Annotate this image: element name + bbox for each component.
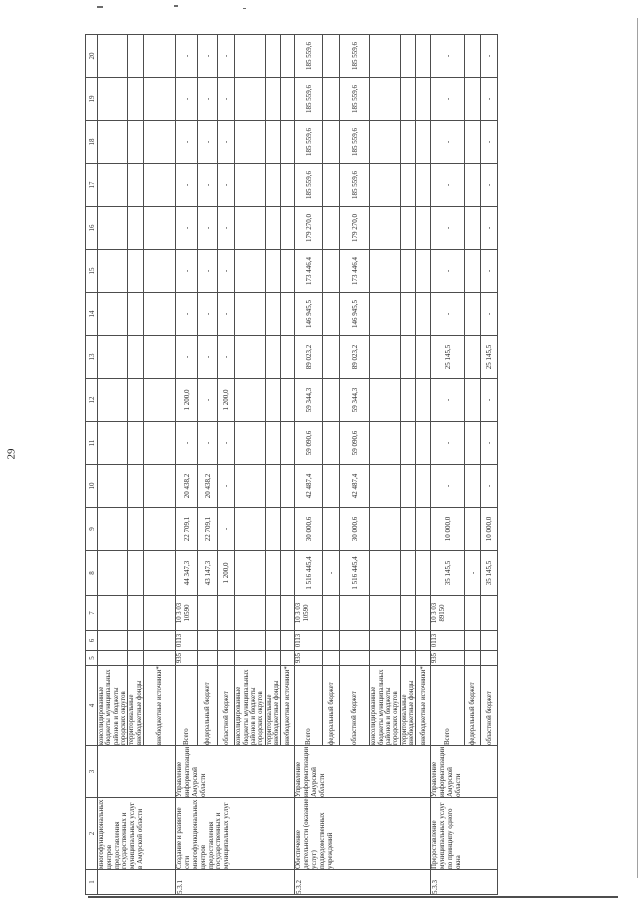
funding-source-label: федеральный бюджет — [323, 666, 340, 746]
amount-cell — [465, 121, 481, 164]
scan-speck — [243, 8, 246, 9]
amount-cell — [323, 35, 340, 78]
column-number-cell: 15 — [86, 250, 98, 293]
amount-cell: 1 516 445,4 — [295, 551, 323, 596]
amount-cell: 44 347,3 — [176, 551, 198, 596]
csr-code-cell — [128, 596, 144, 631]
csr-code-cell — [340, 596, 370, 631]
amount-cell — [144, 551, 176, 596]
amount-cell: 185 559,6 — [295, 35, 323, 78]
amount-cell: 185 559,6 — [340, 78, 370, 121]
grbs-code-cell — [416, 651, 431, 666]
amount-cell — [465, 78, 481, 121]
rzpr-code-cell — [235, 631, 265, 651]
amount-cell — [128, 551, 144, 596]
amount-cell: - — [198, 121, 218, 164]
rzpr-code-cell — [98, 631, 128, 651]
amount-cell: - — [198, 207, 218, 250]
amount-cell: - — [218, 293, 235, 336]
row-group-number: 5.3.2 — [295, 870, 431, 895]
amount-cell — [144, 207, 176, 250]
amount-cell: 146 945,5 — [295, 293, 323, 336]
amount-cell — [400, 250, 416, 293]
amount-cell — [128, 207, 144, 250]
amount-cell — [265, 379, 281, 422]
amount-cell: - — [198, 422, 218, 465]
column-number-cell: 18 — [86, 121, 98, 164]
amount-cell — [281, 551, 295, 596]
amount-cell — [370, 336, 400, 379]
amount-cell: 42 487,4 — [340, 465, 370, 508]
amount-cell — [281, 250, 295, 293]
amount-cell: 1 200,0 — [218, 551, 235, 596]
amount-cell — [98, 250, 128, 293]
amount-cell — [98, 78, 128, 121]
amount-cell — [400, 207, 416, 250]
amount-cell — [370, 250, 400, 293]
amount-cell — [265, 508, 281, 551]
amount-cell — [128, 78, 144, 121]
amount-cell: 185 559,6 — [340, 164, 370, 207]
grbs-code-cell — [128, 651, 144, 666]
column-number-cell: 19 — [86, 78, 98, 121]
column-number-cell: 5 — [86, 651, 98, 666]
amount-cell: 185 559,6 — [340, 35, 370, 78]
amount-cell: - — [198, 78, 218, 121]
amount-cell: 179 270,0 — [340, 207, 370, 250]
amount-cell — [416, 465, 431, 508]
amount-cell — [235, 336, 265, 379]
amount-cell: - — [198, 336, 218, 379]
amount-cell — [281, 78, 295, 121]
amount-cell — [323, 250, 340, 293]
amount-cell — [370, 207, 400, 250]
amount-cell — [416, 121, 431, 164]
amount-cell: - — [431, 78, 465, 121]
amount-cell: - — [218, 422, 235, 465]
grbs-code-cell — [265, 651, 281, 666]
amount-cell — [265, 78, 281, 121]
rzpr-code-cell — [198, 631, 218, 651]
row-group-number: 5.3.1 — [176, 870, 295, 895]
amount-cell — [465, 250, 481, 293]
amount-cell: - — [481, 78, 498, 121]
csr-code-cell: 10 3 03 10590 — [176, 596, 198, 631]
csr-code-cell — [265, 596, 281, 631]
rzpr-code-cell — [481, 631, 498, 651]
funding-source-label: внебюджетные источники* — [144, 666, 176, 746]
amount-cell — [323, 422, 340, 465]
amount-cell — [370, 35, 400, 78]
column-number-cell: 13 — [86, 336, 98, 379]
amount-cell — [416, 207, 431, 250]
amount-cell: - — [198, 164, 218, 207]
amount-cell: 10 000,0 — [431, 508, 465, 551]
column-number-cell: 1 — [86, 870, 98, 895]
amount-cell: 185 559,6 — [295, 121, 323, 164]
amount-cell — [281, 293, 295, 336]
amount-cell — [128, 121, 144, 164]
scan-artifact-right-edge — [637, 18, 638, 878]
grbs-code-cell — [235, 651, 265, 666]
rzpr-code-cell — [400, 631, 416, 651]
amount-cell — [465, 164, 481, 207]
financing-table: 1234567891011121314151617181920многофунк… — [85, 34, 498, 895]
amount-cell — [235, 465, 265, 508]
amount-cell: - — [481, 465, 498, 508]
amount-cell — [281, 465, 295, 508]
csr-code-cell — [281, 596, 295, 631]
funding-source-label: консолидированные бюджеты муниципальных … — [98, 666, 128, 746]
amount-cell: - — [176, 293, 198, 336]
table-row: многофункциональных центров предоставлен… — [98, 35, 128, 895]
amount-cell — [144, 336, 176, 379]
table-row: 5.3.3Предоставление муниципальных услуг … — [431, 35, 465, 895]
amount-cell — [235, 422, 265, 465]
funding-source-label: Всего — [176, 666, 198, 746]
csr-code-cell — [416, 596, 431, 631]
amount-cell — [465, 508, 481, 551]
column-number-cell: 3 — [86, 746, 98, 798]
amount-cell — [281, 121, 295, 164]
csr-code-cell — [323, 596, 340, 631]
column-number-cell: 20 — [86, 35, 98, 78]
amount-cell: 173 446,4 — [340, 250, 370, 293]
amount-cell: - — [481, 207, 498, 250]
amount-cell — [370, 508, 400, 551]
amount-cell — [144, 35, 176, 78]
financing-table-body: 1234567891011121314151617181920многофунк… — [86, 35, 498, 895]
amount-cell: - — [218, 35, 235, 78]
amount-cell — [235, 379, 265, 422]
grbs-code-cell: 935 — [176, 651, 198, 666]
amount-cell — [265, 465, 281, 508]
amount-cell — [400, 551, 416, 596]
amount-cell — [281, 422, 295, 465]
amount-cell: 185 559,6 — [340, 121, 370, 164]
csr-code-cell — [144, 596, 176, 631]
rzpr-code-cell — [416, 631, 431, 651]
amount-cell — [98, 465, 128, 508]
amount-cell — [128, 336, 144, 379]
amount-cell — [400, 422, 416, 465]
amount-cell: 59 090,6 — [295, 422, 323, 465]
amount-cell: - — [218, 508, 235, 551]
amount-cell: 173 446,4 — [295, 250, 323, 293]
amount-cell: - — [176, 164, 198, 207]
amount-cell — [370, 379, 400, 422]
funding-source-label: территориальные внебюджетные фонды — [400, 666, 416, 746]
amount-cell — [416, 422, 431, 465]
amount-cell — [323, 293, 340, 336]
csr-code-cell — [98, 596, 128, 631]
amount-cell — [265, 422, 281, 465]
amount-cell: - — [218, 250, 235, 293]
grbs-code-cell — [400, 651, 416, 666]
amount-cell — [144, 422, 176, 465]
csr-code-cell — [465, 596, 481, 631]
amount-cell — [265, 336, 281, 379]
amount-cell: - — [176, 121, 198, 164]
funding-source-label: областной бюджет — [340, 666, 370, 746]
amount-cell: - — [481, 293, 498, 336]
amount-cell — [128, 35, 144, 78]
grbs-code-cell — [370, 651, 400, 666]
rzpr-code-cell — [323, 631, 340, 651]
amount-cell: - — [431, 379, 465, 422]
amount-cell — [323, 336, 340, 379]
csr-code-cell — [481, 596, 498, 631]
amount-cell: - — [218, 207, 235, 250]
column-number-cell: 6 — [86, 631, 98, 651]
amount-cell — [128, 164, 144, 207]
amount-cell: - — [218, 121, 235, 164]
csr-code-cell — [218, 596, 235, 631]
funding-source-label: внебюджетные источники* — [416, 666, 431, 746]
amount-cell — [465, 379, 481, 422]
column-number-cell: 17 — [86, 164, 98, 207]
amount-cell — [144, 121, 176, 164]
amount-cell — [400, 35, 416, 78]
amount-cell — [144, 465, 176, 508]
amount-cell: 20 438,2 — [176, 465, 198, 508]
amount-cell — [465, 465, 481, 508]
amount-cell: - — [198, 293, 218, 336]
amount-cell: 35 145,5 — [481, 551, 498, 596]
amount-cell — [265, 35, 281, 78]
amount-cell — [400, 508, 416, 551]
funding-source-label: федеральный бюджет — [198, 666, 218, 746]
grbs-code-cell — [218, 651, 235, 666]
amount-cell — [98, 293, 128, 336]
amount-cell — [370, 465, 400, 508]
csr-code-cell — [235, 596, 265, 631]
amount-cell — [416, 35, 431, 78]
amount-cell — [128, 293, 144, 336]
amount-cell: - — [465, 551, 481, 596]
funding-source-label: внебюджетные источники* — [281, 666, 295, 746]
amount-cell — [235, 207, 265, 250]
amount-cell — [370, 551, 400, 596]
amount-cell — [323, 508, 340, 551]
grbs-code-cell — [340, 651, 370, 666]
amount-cell — [98, 336, 128, 379]
amount-cell — [416, 379, 431, 422]
amount-cell: - — [431, 422, 465, 465]
rzpr-code-cell: 0113 — [295, 631, 323, 651]
amount-cell: - — [176, 336, 198, 379]
amount-cell — [128, 250, 144, 293]
amount-cell — [465, 422, 481, 465]
amount-cell — [144, 164, 176, 207]
rzpr-code-cell — [370, 631, 400, 651]
amount-cell: - — [431, 35, 465, 78]
amount-cell — [323, 207, 340, 250]
amount-cell: - — [198, 35, 218, 78]
row-group-name: Предоставление муниципальных услуг по пр… — [431, 798, 498, 870]
amount-cell: 25 145,5 — [431, 336, 465, 379]
amount-cell: - — [323, 551, 340, 596]
amount-cell — [323, 465, 340, 508]
amount-cell — [323, 379, 340, 422]
grbs-code-cell — [481, 651, 498, 666]
amount-cell — [265, 164, 281, 207]
rzpr-code-cell — [144, 631, 176, 651]
column-number-cell: 10 — [86, 465, 98, 508]
amount-cell: - — [481, 35, 498, 78]
amount-cell: - — [198, 379, 218, 422]
amount-cell — [281, 207, 295, 250]
csr-code-cell: 10 3 03 10590 — [295, 596, 323, 631]
scan-speck — [174, 5, 178, 7]
amount-cell — [235, 293, 265, 336]
amount-cell — [370, 422, 400, 465]
amount-cell: 1 200,0 — [218, 379, 235, 422]
amount-cell: 59 090,6 — [340, 422, 370, 465]
amount-cell — [465, 336, 481, 379]
amount-cell — [400, 379, 416, 422]
amount-cell: 185 559,6 — [295, 164, 323, 207]
amount-cell: - — [218, 465, 235, 508]
amount-cell: 146 945,5 — [340, 293, 370, 336]
amount-cell — [235, 508, 265, 551]
amount-cell — [370, 293, 400, 336]
row-group-executor: Управление информатизации Амурской облас… — [176, 746, 295, 798]
amount-cell: - — [218, 164, 235, 207]
scan-artifact-bottom-line — [88, 896, 618, 898]
amount-cell: 10 000,0 — [481, 508, 498, 551]
amount-cell — [98, 551, 128, 596]
rzpr-code-cell — [465, 631, 481, 651]
amount-cell — [144, 508, 176, 551]
funding-source-label: областной бюджет — [481, 666, 498, 746]
amount-cell: 179 270,0 — [295, 207, 323, 250]
rzpr-code-cell: 0113 — [176, 631, 198, 651]
amount-cell — [281, 35, 295, 78]
amount-cell — [400, 121, 416, 164]
amount-cell — [323, 164, 340, 207]
amount-cell — [416, 250, 431, 293]
amount-cell: 22 709,1 — [176, 508, 198, 551]
amount-cell: - — [481, 250, 498, 293]
amount-cell: - — [431, 207, 465, 250]
column-number-cell: 7 — [86, 596, 98, 631]
csr-code-cell — [400, 596, 416, 631]
amount-cell: - — [481, 379, 498, 422]
amount-cell — [370, 121, 400, 164]
grbs-code-cell — [323, 651, 340, 666]
amount-cell: - — [481, 121, 498, 164]
amount-cell: - — [431, 121, 465, 164]
amount-cell — [265, 207, 281, 250]
column-number-cell: 9 — [86, 508, 98, 551]
amount-cell: 25 145,5 — [481, 336, 498, 379]
amount-cell: - — [176, 35, 198, 78]
amount-cell — [265, 293, 281, 336]
page-number: 29 — [6, 449, 18, 460]
document-page: { "page_number": "29", "table": { "colum… — [0, 0, 640, 905]
amount-cell — [144, 293, 176, 336]
amount-cell: 89 023,2 — [340, 336, 370, 379]
amount-cell — [98, 164, 128, 207]
column-number-cell: 8 — [86, 551, 98, 596]
column-number-cell: 12 — [86, 379, 98, 422]
row-group-executor: Управление информатизации Амурской облас… — [295, 746, 431, 798]
grbs-code-cell — [144, 651, 176, 666]
amount-cell: - — [176, 78, 198, 121]
amount-cell — [265, 250, 281, 293]
amount-cell — [323, 121, 340, 164]
amount-cell — [235, 164, 265, 207]
amount-cell — [416, 551, 431, 596]
amount-cell: - — [431, 293, 465, 336]
amount-cell: 30 000,6 — [340, 508, 370, 551]
amount-cell: - — [176, 250, 198, 293]
amount-cell — [400, 164, 416, 207]
grbs-code-cell: 935 — [431, 651, 465, 666]
amount-cell — [98, 35, 128, 78]
amount-cell: - — [481, 422, 498, 465]
rzpr-code-cell — [128, 631, 144, 651]
column-number-cell: 14 — [86, 293, 98, 336]
amount-cell — [281, 508, 295, 551]
amount-cell — [98, 121, 128, 164]
row-group-executor: Управление информатизации Амурской облас… — [431, 746, 498, 798]
amount-cell: - — [431, 164, 465, 207]
amount-cell — [465, 293, 481, 336]
amount-cell: 1 200,0 — [176, 379, 198, 422]
scan-speck — [97, 6, 103, 8]
amount-cell — [400, 293, 416, 336]
amount-cell: 30 000,6 — [295, 508, 323, 551]
amount-cell — [281, 379, 295, 422]
amount-cell — [235, 78, 265, 121]
amount-cell: 22 709,1 — [198, 508, 218, 551]
row-group-executor — [98, 746, 176, 798]
amount-cell — [400, 78, 416, 121]
funding-source-label: федеральный бюджет — [465, 666, 481, 746]
amount-cell — [144, 250, 176, 293]
grbs-code-cell — [198, 651, 218, 666]
row-group-number — [98, 870, 176, 895]
amount-cell — [265, 121, 281, 164]
rzpr-code-cell — [281, 631, 295, 651]
funding-source-label: Всего — [431, 666, 465, 746]
amount-cell — [128, 379, 144, 422]
amount-cell: - — [198, 250, 218, 293]
funding-source-label: территориальные внебюджетные фонды — [128, 666, 144, 746]
amount-cell — [281, 164, 295, 207]
column-number-cell: 16 — [86, 207, 98, 250]
rotated-table-sheet: 1234567891011121314151617181920многофунк… — [85, 35, 485, 895]
grbs-code-cell — [98, 651, 128, 666]
amount-cell: 42 487,4 — [295, 465, 323, 508]
amount-cell: - — [218, 336, 235, 379]
amount-cell: - — [218, 78, 235, 121]
amount-cell — [128, 422, 144, 465]
row-group-number: 5.3.3 — [431, 870, 498, 895]
amount-cell — [265, 551, 281, 596]
funding-source-label: консолидированные бюджеты муниципальных … — [370, 666, 400, 746]
amount-cell — [128, 508, 144, 551]
amount-cell — [323, 78, 340, 121]
amount-cell — [144, 379, 176, 422]
amount-cell: - — [481, 164, 498, 207]
amount-cell: - — [431, 250, 465, 293]
grbs-code-cell: 935 — [295, 651, 323, 666]
amount-cell — [416, 336, 431, 379]
amount-cell — [370, 78, 400, 121]
